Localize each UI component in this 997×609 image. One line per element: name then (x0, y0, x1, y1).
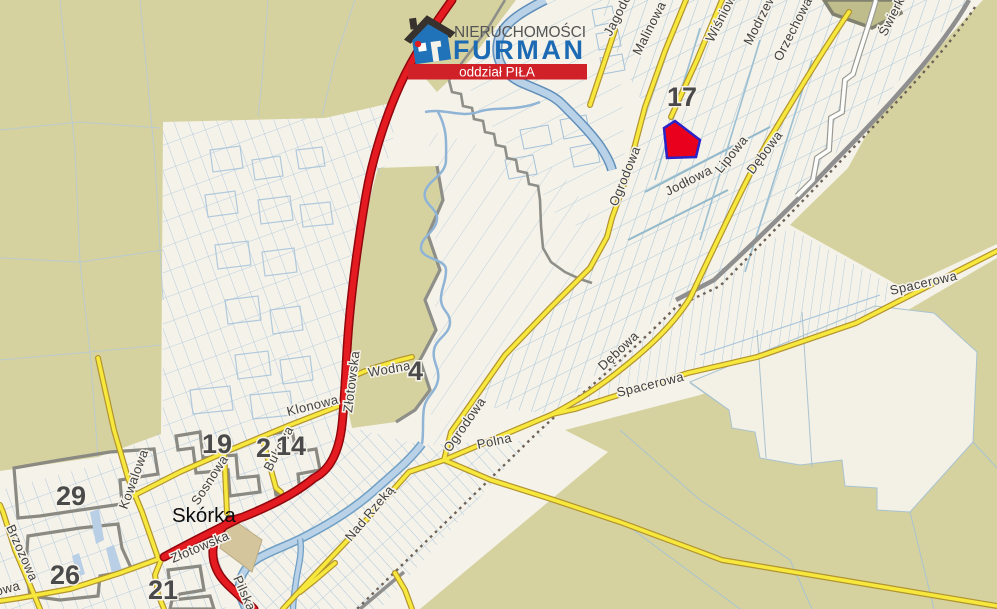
svg-text:21: 21 (148, 575, 178, 605)
svg-text:17: 17 (667, 82, 697, 112)
svg-text:19: 19 (202, 429, 232, 459)
svg-text:26: 26 (50, 560, 80, 590)
svg-text:Skórka: Skórka (172, 504, 236, 527)
svg-text:14: 14 (276, 431, 306, 461)
svg-text:4: 4 (408, 356, 423, 386)
svg-text:oddział PIŁA: oddział PIŁA (459, 65, 535, 80)
svg-text:2: 2 (256, 433, 271, 463)
svg-text:FURMAN: FURMAN (453, 35, 587, 65)
svg-text:29: 29 (56, 481, 86, 511)
